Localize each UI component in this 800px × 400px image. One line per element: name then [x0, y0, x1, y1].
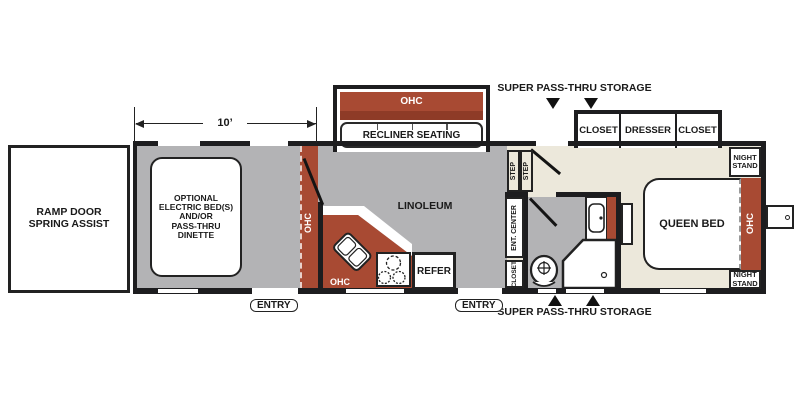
dimension-arrow-right — [307, 120, 316, 128]
night-stand-top: NIGHT STAND — [729, 147, 761, 177]
window-gap — [158, 141, 200, 146]
refrigerator: REFER — [412, 252, 456, 290]
hitch-pin — [785, 215, 790, 220]
refer-label: REFER — [417, 266, 451, 277]
dimension-tick-right — [316, 107, 317, 143]
closet-label: CLOSET — [511, 261, 518, 287]
floor-label: LINOLEUM — [398, 201, 453, 213]
slideout-ohc-shadow — [340, 111, 483, 120]
closet-left-label: CLOSET — [579, 126, 618, 136]
arrow-down-icon — [584, 98, 598, 109]
window-gap — [346, 289, 404, 293]
bedroom-ohc-cabinet: OHC — [741, 178, 761, 270]
storage-door-gap — [536, 141, 568, 146]
step-1: STEP — [507, 150, 520, 192]
arrow-up-icon — [548, 295, 562, 306]
closet-right-label: CLOSET — [678, 126, 717, 136]
garage-ohc-label-box: OHC — [300, 200, 318, 246]
floorplan: OHC RECLINER SEATING CLOSET DRESSER CLOS… — [0, 0, 800, 400]
storage-label-bottom-box: SUPER PASS-THRU STORAGE — [482, 306, 667, 319]
queen-bed-label: QUEEN BED — [659, 218, 724, 230]
shower — [563, 240, 616, 288]
bedroom-cabinet — [621, 203, 633, 245]
entry-pill: ENTRY — [455, 299, 503, 312]
storage-door-gap — [538, 289, 556, 293]
storage-top-label: SUPER PASS-THRU STORAGE — [497, 83, 651, 95]
ohc-label: OHC — [400, 96, 422, 107]
night-stand-label: NIGHT STAND — [732, 154, 757, 171]
queen-bed: QUEEN BED — [643, 178, 741, 270]
dresser-label: DRESSER — [625, 126, 671, 136]
step-label: STEP — [523, 162, 531, 180]
storage-door-gap — [566, 289, 604, 293]
hall-closet: CLOSET — [505, 260, 524, 288]
arrow-down-icon — [546, 98, 560, 109]
linoleum-label-box: LINOLEUM — [385, 200, 465, 214]
entry-label-garage: ENTRY — [250, 295, 298, 313]
step-label: STEP — [510, 162, 518, 180]
garage-option-box: OPTIONAL ELECTRIC BED(S) AND/OR PASS-THR… — [150, 157, 242, 277]
garage-option-label: OPTIONAL ELECTRIC BED(S) AND/OR PASS-THR… — [159, 194, 233, 241]
step-2: STEP — [520, 150, 533, 192]
entertainment-center: ENT. CENTER — [505, 197, 524, 258]
arrow-up-icon — [586, 295, 600, 306]
ent-center-label: ENT. CENTER — [511, 205, 519, 251]
entry-door-gap — [252, 288, 298, 294]
slideout-ohc-cabinet: OHC — [340, 92, 483, 111]
kitchen-counter — [318, 206, 412, 288]
dimension-arrow-left — [135, 120, 144, 128]
dimension-label: 10’ — [217, 117, 232, 129]
window-gap — [660, 289, 706, 293]
entry-door-gap — [458, 288, 502, 294]
window-gap — [250, 141, 288, 146]
wall-left — [133, 141, 137, 294]
ohc-label: OHC — [746, 213, 756, 234]
ohc-label: OHC — [304, 213, 314, 233]
ramp-door: RAMP DOOR SPRING ASSIST — [8, 145, 130, 293]
bathroom-fixtures — [528, 197, 616, 288]
night-stand-label: NIGHT STAND — [732, 271, 757, 288]
storage-bottom-label: SUPER PASS-THRU STORAGE — [497, 307, 651, 319]
ohc-label: OHC — [330, 278, 350, 288]
recliner-seating-label: RECLINER SEATING — [361, 130, 463, 141]
entry-pill: ENTRY — [250, 299, 298, 312]
wall-top — [133, 141, 765, 146]
night-stand-bottom: NIGHT STAND — [729, 270, 761, 289]
kitchen-ohc-label-box: OHC — [324, 277, 356, 289]
entry-label-living: ENTRY — [455, 295, 503, 313]
dimension-label-box: 10’ — [203, 115, 247, 131]
window-gap — [158, 289, 198, 293]
ramp-door-label: RAMP DOOR SPRING ASSIST — [29, 207, 110, 230]
storage-label-top-box: SUPER PASS-THRU STORAGE — [482, 82, 667, 95]
hitch-pin-box — [766, 205, 794, 229]
